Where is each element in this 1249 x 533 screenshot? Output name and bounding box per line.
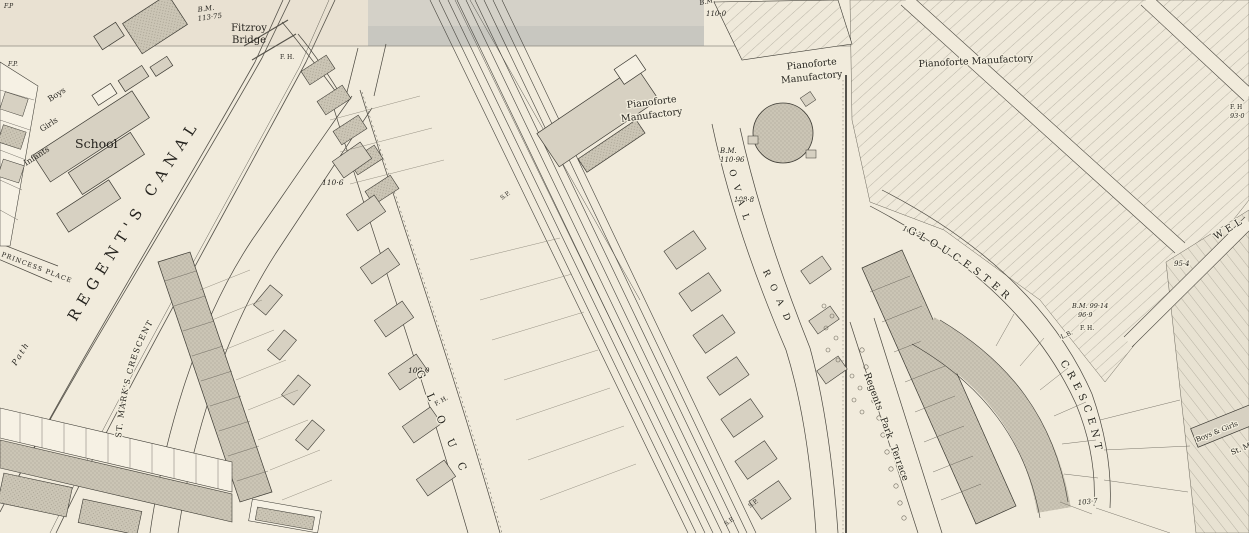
spot-height-96-9: 96·9	[1078, 311, 1092, 319]
spot-height-110-6: 110·6	[322, 178, 344, 187]
ordnance-survey-map: F.P F.P. B.M. 113·75 Fitzroy Bridge F. H…	[0, 0, 1249, 533]
circular-building	[753, 103, 813, 163]
fitzroy-bridge-label-line1: Fitzroy	[231, 23, 267, 34]
map-canvas: F.P F.P. B.M. 113·75 Fitzroy Bridge F. H…	[0, 0, 1249, 533]
spot-height-95-4: 95·4	[1174, 260, 1190, 268]
fh-bridge-marker: F. H.	[280, 54, 294, 61]
benchmark-oval: B.M.	[719, 147, 737, 155]
spot-height-110-0: 110·0	[706, 10, 727, 18]
fh-crescent-marker: F. H.	[1080, 325, 1094, 332]
benchmark-oval-value: 110·96	[720, 156, 745, 164]
school-label: School	[75, 136, 118, 151]
fp-left-marker: F.P.	[7, 61, 18, 68]
benchmark-crescent: B.M. 99·14	[1071, 302, 1108, 310]
fh-right-marker: F. H	[1230, 104, 1242, 111]
fitzroy-bridge-label-line2: Bridge	[232, 35, 266, 46]
fp-corner-marker: F.P	[3, 3, 14, 10]
spot-height-93-0: 93·0	[1230, 112, 1244, 120]
